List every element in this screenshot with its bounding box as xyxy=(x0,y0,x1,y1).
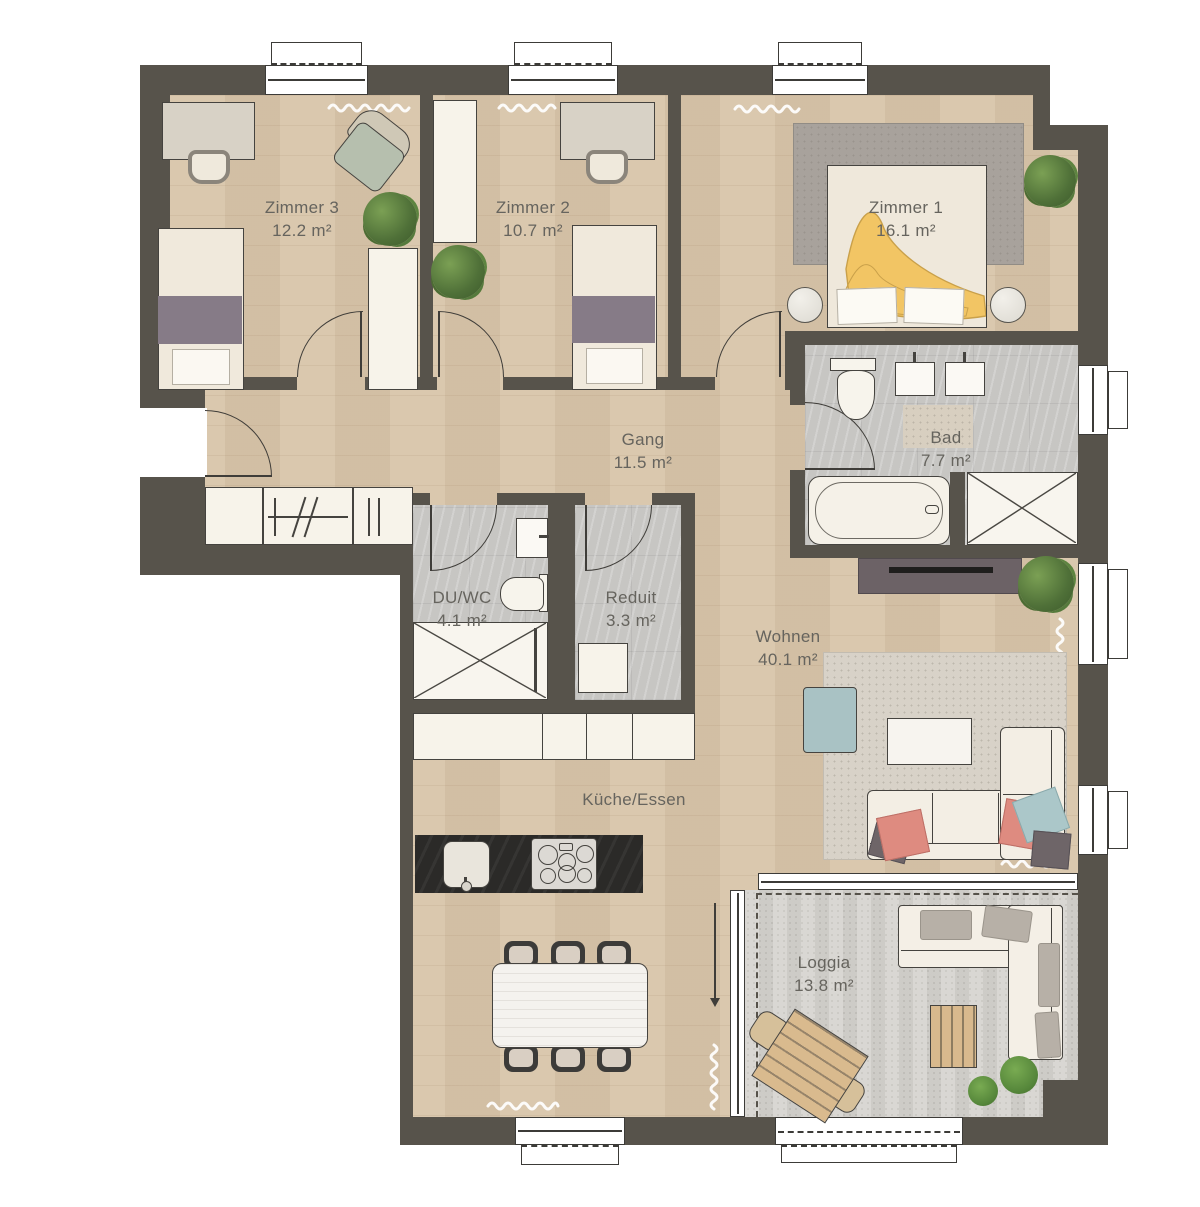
window xyxy=(515,1117,625,1145)
building-notch xyxy=(1050,65,1108,125)
dining-chair xyxy=(551,1044,585,1072)
wall xyxy=(413,493,430,505)
room-name: DU/WC xyxy=(432,586,491,609)
wall xyxy=(400,1117,1108,1145)
wall xyxy=(681,493,695,713)
window xyxy=(508,65,618,95)
dining-table xyxy=(492,963,648,1048)
room-label-reduit: Reduit 3.3 m² xyxy=(606,586,657,632)
dining-chair xyxy=(597,1044,631,1072)
radiator-icon xyxy=(486,1098,560,1116)
room-label-bad: Bad 7.7 m² xyxy=(921,426,971,472)
radiator-icon xyxy=(707,1043,721,1118)
room-label-gang: Gang 11.5 m² xyxy=(614,428,672,474)
wall xyxy=(420,95,433,390)
cushion xyxy=(920,910,972,940)
sideboard xyxy=(858,558,1022,594)
dining-chair xyxy=(504,1044,538,1072)
wall xyxy=(652,493,682,505)
floor-plan: Zimmer 3 12.2 m² Zimmer 2 10.7 m² Zimmer… xyxy=(0,0,1200,1207)
bush xyxy=(968,1076,998,1106)
door-leaf xyxy=(430,505,432,571)
wall xyxy=(140,545,413,575)
coffee-table xyxy=(887,718,972,765)
wall xyxy=(548,493,575,700)
window xyxy=(1078,563,1108,665)
room-area: 4.1 m² xyxy=(432,609,491,632)
loggia-glass-wall xyxy=(730,890,745,1117)
room-area: 3.3 m² xyxy=(606,609,657,632)
nightstand xyxy=(787,287,823,323)
room-area: 16.1 m² xyxy=(869,219,943,242)
loggia-glazing xyxy=(775,1117,963,1145)
room-label-zimmer3: Zimmer 3 12.2 m² xyxy=(265,196,339,242)
window-sill xyxy=(1108,569,1128,659)
shower-door xyxy=(534,628,537,692)
wall xyxy=(400,493,413,1145)
pillow xyxy=(836,287,897,325)
window-sill xyxy=(1108,371,1128,429)
shower xyxy=(967,472,1078,545)
wall xyxy=(668,95,681,390)
room-area: 13.8 m² xyxy=(794,974,854,997)
appliance xyxy=(578,643,628,693)
room-area: 10.7 m² xyxy=(496,219,570,242)
room-label-wohnen: Wohnen 40.1 m² xyxy=(756,625,821,671)
exit-arrow-head xyxy=(710,998,720,1007)
radiator-icon xyxy=(733,101,803,119)
stove xyxy=(531,838,597,890)
room-name: Zimmer 2 xyxy=(496,196,570,219)
wardrobe xyxy=(368,248,418,390)
room-name: Loggia xyxy=(794,951,854,974)
room-name: Reduit xyxy=(606,586,657,609)
desk-chair xyxy=(586,150,628,184)
double-bed xyxy=(827,165,987,328)
door-leaf xyxy=(779,311,781,377)
room-name: Wohnen xyxy=(756,625,821,648)
entry-door-opening xyxy=(137,408,207,477)
built-in-wardrobe xyxy=(205,487,413,545)
wall xyxy=(790,545,1078,558)
window xyxy=(265,65,368,95)
toilet-bowl xyxy=(500,577,544,611)
kitchen-cabinets xyxy=(413,713,695,760)
wall xyxy=(950,472,965,545)
room-name: Küche/Essen xyxy=(582,788,685,811)
hanger-rail xyxy=(268,516,348,518)
loggia-glass-wall xyxy=(758,873,1078,890)
slat-table xyxy=(930,1005,977,1068)
window-sill xyxy=(1108,791,1128,849)
room-area: 12.2 m² xyxy=(265,219,339,242)
sink xyxy=(945,362,985,396)
pillow xyxy=(876,809,930,862)
door-leaf xyxy=(438,311,440,377)
plant xyxy=(363,192,417,246)
wall xyxy=(400,700,695,713)
room-name: Zimmer 3 xyxy=(265,196,339,219)
door-leaf xyxy=(805,468,875,470)
room-area: 11.5 m² xyxy=(614,451,672,474)
bush xyxy=(1000,1056,1038,1094)
armchair xyxy=(803,687,857,753)
room-label-loggia: Loggia 13.8 m² xyxy=(794,951,854,997)
plant xyxy=(1018,556,1074,612)
door-leaf xyxy=(585,505,587,571)
window xyxy=(1078,785,1108,855)
room-area: 40.1 m² xyxy=(756,648,821,671)
sink xyxy=(895,362,935,396)
window xyxy=(1078,365,1108,435)
nightstand xyxy=(990,287,1026,323)
room-label-zimmer2: Zimmer 2 10.7 m² xyxy=(496,196,570,242)
plant xyxy=(431,245,485,299)
cushion xyxy=(1038,943,1060,1007)
door-leaf xyxy=(360,311,362,377)
room-label-zimmer1: Zimmer 1 16.1 m² xyxy=(869,196,943,242)
bed xyxy=(158,228,244,390)
room-area: 7.7 m² xyxy=(921,449,971,472)
bed xyxy=(572,225,657,390)
tub-faucet xyxy=(925,505,939,514)
room-name: Bad xyxy=(921,426,971,449)
wardrobe xyxy=(433,100,477,243)
toilet-bowl xyxy=(837,370,875,420)
window-sill xyxy=(271,42,362,65)
radiator-icon xyxy=(497,100,561,118)
bathtub xyxy=(808,476,950,545)
sink xyxy=(516,518,548,558)
sink-faucet xyxy=(461,881,472,892)
window-sill xyxy=(781,1145,957,1163)
window-sill xyxy=(521,1145,619,1165)
desk-chair xyxy=(188,150,230,184)
door-leaf xyxy=(205,475,272,477)
plant xyxy=(1024,155,1076,207)
window-sill xyxy=(778,42,862,65)
outside-area xyxy=(0,575,400,1207)
wall xyxy=(790,390,805,405)
cushion xyxy=(981,905,1033,943)
pillow xyxy=(903,287,964,325)
pillow xyxy=(1031,830,1072,869)
room-label-duwc: DU/WC 4.1 m² xyxy=(432,586,491,632)
exit-arrow xyxy=(714,903,716,998)
room-name: Gang xyxy=(614,428,672,451)
kitchen-counter xyxy=(415,835,643,893)
wall xyxy=(790,331,1078,345)
window xyxy=(772,65,868,95)
room-label-kueche: Küche/Essen xyxy=(582,788,685,811)
shower xyxy=(413,622,548,700)
cushion xyxy=(1034,1011,1061,1059)
window-sill xyxy=(514,42,612,65)
tv xyxy=(889,567,993,573)
room-name: Zimmer 1 xyxy=(869,196,943,219)
